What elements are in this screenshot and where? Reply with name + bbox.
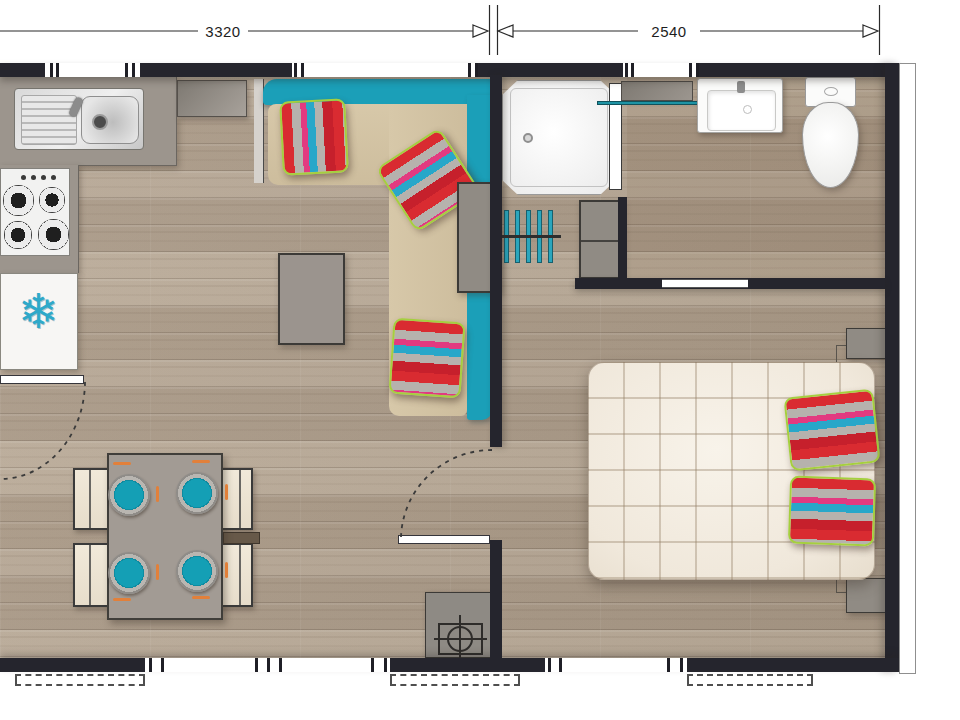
dimension-label-right: 2540 (638, 23, 700, 40)
dimension-and-arc-layer (0, 0, 960, 720)
bedroom-door-arc (401, 450, 492, 537)
entry-door-arc (3, 382, 85, 479)
dimension-arrow (473, 25, 488, 37)
dimension-arrow (863, 25, 878, 37)
dimension-label-left: 3320 (197, 23, 249, 40)
dimension-arrow (498, 25, 513, 37)
floor-plan: ❄ (0, 0, 960, 720)
